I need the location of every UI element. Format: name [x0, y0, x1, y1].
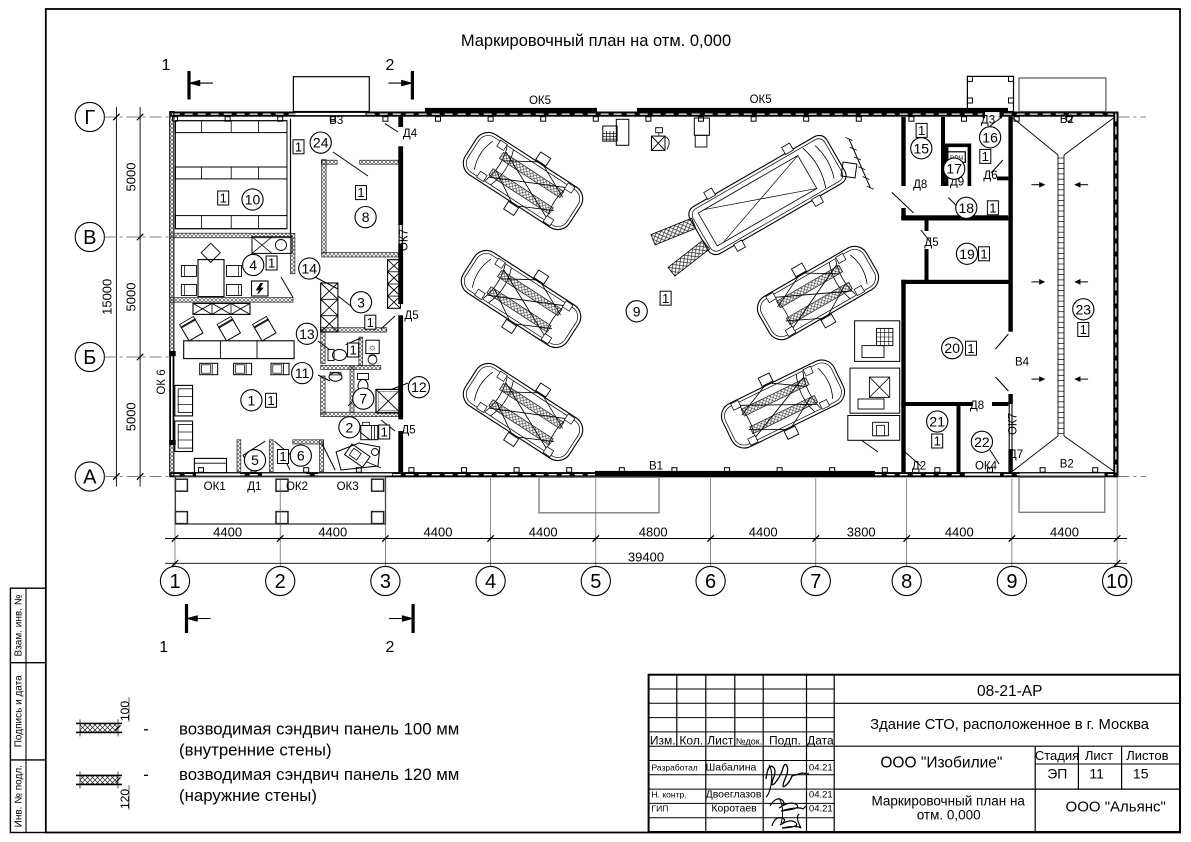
svg-text:Маркировочный план на отм. 0,0: Маркировочный план на отм. 0,000	[461, 32, 731, 50]
svg-text:3: 3	[357, 294, 365, 310]
svg-text:7: 7	[810, 571, 821, 593]
svg-text:Д4: Д4	[403, 128, 418, 140]
svg-text:Г: Г	[84, 107, 95, 129]
svg-text:9: 9	[633, 303, 641, 319]
svg-text:1: 1	[169, 571, 180, 593]
svg-text:10: 10	[1106, 571, 1128, 593]
svg-text:1: 1	[934, 434, 941, 449]
svg-text:14: 14	[302, 261, 318, 277]
svg-text:ЭП: ЭП	[1047, 765, 1067, 781]
svg-text:ОК7: ОК7	[1008, 413, 1020, 435]
svg-text:Двоеглазов: Двоеглазов	[706, 789, 762, 801]
svg-text:Здание СТО, расположенное в г.: Здание СТО, расположенное в г. Москва	[870, 717, 1150, 733]
svg-text:Изм.: Изм.	[650, 734, 676, 748]
svg-text:4400: 4400	[213, 525, 242, 540]
svg-text:Б: Б	[83, 347, 96, 369]
svg-text:4400: 4400	[424, 525, 453, 540]
svg-text:Д1: Д1	[247, 481, 261, 493]
svg-text:2: 2	[346, 419, 354, 435]
svg-text:В4: В4	[1015, 357, 1030, 369]
svg-text:ОК5: ОК5	[529, 95, 551, 107]
svg-text:ОК2: ОК2	[286, 481, 308, 493]
svg-text:2: 2	[386, 639, 395, 656]
svg-text:4: 4	[249, 257, 257, 273]
svg-text:5000: 5000	[124, 283, 139, 312]
svg-text:8: 8	[901, 571, 912, 593]
svg-text:08-21-АР: 08-21-АР	[977, 683, 1042, 700]
svg-text:ОК 6: ОК 6	[156, 369, 168, 394]
svg-text:1: 1	[279, 449, 286, 464]
svg-text:10: 10	[245, 192, 261, 208]
svg-text:1: 1	[220, 191, 227, 206]
svg-text:ООО "Изобилие": ООО "Изобилие"	[880, 755, 1002, 772]
svg-text:1: 1	[248, 392, 256, 408]
svg-text:отм. 0,000: отм. 0,000	[917, 807, 981, 822]
svg-text:Д5: Д5	[924, 237, 938, 249]
svg-text:19: 19	[959, 246, 975, 262]
svg-text:Д5: Д5	[401, 425, 415, 437]
svg-text:1: 1	[367, 315, 374, 330]
svg-text:В3: В3	[329, 115, 343, 127]
svg-text:В: В	[83, 227, 96, 249]
svg-text:39400: 39400	[628, 549, 664, 564]
svg-text:возводимая сэндвич панель 120: возводимая сэндвич панель 120 мм	[179, 765, 459, 784]
svg-text:4: 4	[485, 571, 496, 593]
svg-text:5000: 5000	[124, 402, 139, 431]
svg-text:1: 1	[989, 200, 996, 215]
svg-text:ОК4: ОК4	[975, 461, 998, 473]
svg-text:5000: 5000	[124, 163, 139, 192]
svg-text:Д2: Д2	[912, 461, 926, 473]
svg-text:04.21: 04.21	[809, 790, 833, 801]
svg-text:Д5: Д5	[404, 310, 418, 322]
svg-text:Лист: Лист	[1085, 748, 1113, 763]
svg-text:04.21: 04.21	[809, 803, 833, 814]
svg-text:1: 1	[357, 185, 364, 200]
svg-text:Стадия: Стадия	[1035, 748, 1079, 763]
svg-text:В1: В1	[649, 461, 663, 473]
svg-text:15: 15	[1133, 765, 1149, 781]
svg-text:7: 7	[359, 391, 367, 407]
svg-text:9: 9	[1006, 571, 1017, 593]
svg-text:Н. контр.: Н. контр.	[652, 790, 687, 800]
svg-text:1: 1	[268, 256, 275, 271]
svg-text:1: 1	[918, 123, 925, 138]
svg-text:Подпись и дата: Подпись и дата	[14, 675, 25, 747]
svg-text:ОК1: ОК1	[204, 481, 226, 493]
svg-text:2: 2	[275, 571, 286, 593]
svg-text:1: 1	[1080, 322, 1087, 337]
svg-text:А: А	[83, 467, 97, 489]
svg-text:Д7: Д7	[1009, 449, 1023, 461]
svg-text:8: 8	[362, 209, 370, 225]
svg-text:1: 1	[349, 343, 356, 358]
svg-text:В2: В2	[1060, 459, 1074, 471]
svg-text:4400: 4400	[749, 525, 778, 540]
svg-text:16: 16	[982, 129, 998, 145]
svg-text:22: 22	[974, 434, 990, 450]
svg-text:Коротаев: Коротаев	[711, 802, 757, 814]
svg-text:1: 1	[982, 149, 989, 164]
svg-text:1: 1	[381, 425, 388, 440]
svg-text:13: 13	[299, 326, 315, 342]
svg-text:-: -	[143, 720, 149, 739]
svg-text:11: 11	[1089, 765, 1104, 781]
svg-text:2: 2	[386, 57, 395, 74]
svg-text:11: 11	[295, 365, 310, 381]
svg-text:ОК7: ОК7	[399, 229, 411, 251]
svg-text:1: 1	[980, 246, 987, 261]
svg-text:17: 17	[946, 161, 962, 177]
svg-text:6: 6	[297, 448, 305, 464]
svg-text:Д8: Д8	[970, 400, 984, 412]
svg-text:Инв. № подл.: Инв. № подл.	[14, 765, 25, 827]
svg-text:6: 6	[705, 571, 716, 593]
svg-text:24: 24	[313, 135, 329, 151]
svg-text:5: 5	[590, 571, 601, 593]
svg-text:3: 3	[380, 571, 391, 593]
svg-text:4800: 4800	[639, 525, 668, 540]
svg-text:5: 5	[251, 452, 259, 468]
svg-text:Подп.: Подп.	[769, 734, 801, 748]
svg-text:18: 18	[959, 200, 975, 216]
svg-text:-: -	[143, 765, 149, 784]
svg-text:120: 120	[118, 789, 132, 809]
svg-text:В2: В2	[1060, 114, 1074, 126]
svg-text:1: 1	[662, 291, 669, 306]
svg-text:3800: 3800	[847, 525, 876, 540]
svg-text:Д6: Д6	[983, 170, 997, 182]
svg-text:Д8: Д8	[913, 179, 927, 191]
svg-text:ОК5: ОК5	[750, 94, 772, 106]
svg-text:☼: ☼	[368, 343, 377, 354]
svg-text:4400: 4400	[318, 525, 347, 540]
svg-text:Д3: Д3	[981, 115, 995, 127]
svg-text:1: 1	[967, 341, 974, 356]
svg-text:12: 12	[411, 379, 427, 395]
svg-text:ОК3: ОК3	[337, 481, 359, 493]
svg-text:1: 1	[295, 139, 302, 154]
svg-text:Шабалина: Шабалина	[706, 762, 757, 774]
svg-text:Разработал: Разработал	[652, 763, 698, 773]
svg-text:1: 1	[162, 57, 171, 74]
svg-text:(наружние стены): (наружние стены)	[179, 786, 317, 805]
svg-text:20: 20	[944, 340, 960, 356]
svg-text:(внутренние стены): (внутренние стены)	[179, 740, 332, 759]
svg-text:100: 100	[118, 701, 132, 721]
svg-text:1: 1	[267, 393, 274, 408]
svg-text:возводимая сэндвич панель 100: возводимая сэндвич панель 100 мм	[179, 720, 459, 739]
svg-text:Дата: Дата	[807, 734, 834, 748]
svg-text:21: 21	[929, 414, 945, 430]
svg-text:Листов: Листов	[1126, 748, 1168, 763]
svg-text:4400: 4400	[529, 525, 558, 540]
svg-text:Взам. инв. №: Взам. инв. №	[14, 594, 25, 656]
svg-text:23: 23	[1076, 301, 1092, 317]
svg-text:04.21: 04.21	[809, 763, 833, 774]
svg-text:4400: 4400	[1050, 525, 1079, 540]
svg-text:ГИП: ГИП	[652, 803, 669, 813]
svg-text:Кол.: Кол.	[679, 734, 703, 748]
svg-text:15: 15	[914, 140, 930, 156]
svg-text:Лист: Лист	[707, 734, 734, 748]
svg-text:1: 1	[159, 639, 168, 656]
svg-text:4400: 4400	[945, 525, 974, 540]
svg-text:15000: 15000	[100, 279, 115, 315]
svg-text:ООО "Альянс": ООО "Альянс"	[1066, 799, 1166, 816]
svg-text:№док.: №док.	[736, 737, 762, 747]
